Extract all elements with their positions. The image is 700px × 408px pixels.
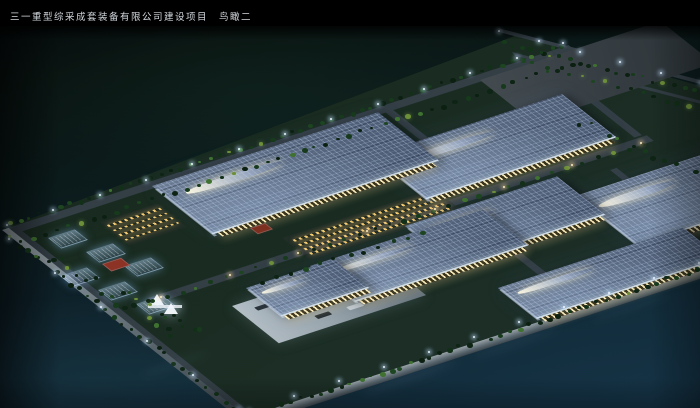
tree (94, 299, 99, 303)
tree (349, 253, 354, 257)
tree (65, 266, 70, 270)
tree (92, 217, 97, 221)
tree (31, 237, 36, 241)
street-light (99, 194, 101, 196)
street-light (608, 292, 610, 294)
tree (447, 348, 453, 353)
tree (538, 321, 543, 325)
tree (570, 63, 575, 67)
tree (172, 314, 176, 317)
tree (55, 229, 58, 232)
tree (154, 323, 160, 327)
street-light (516, 57, 518, 59)
tree (466, 96, 472, 101)
tree (147, 316, 153, 321)
night-aerial-rendering: 三一重型综采成套装备有限公司建设项目 鸟瞰二 (0, 0, 700, 408)
tree (242, 167, 247, 171)
tree (87, 197, 91, 200)
street-light (383, 366, 385, 368)
tree (369, 375, 372, 377)
tree (150, 197, 154, 200)
street-light (8, 238, 10, 240)
tree (178, 319, 182, 322)
tree (518, 328, 524, 332)
street-light (192, 374, 194, 376)
street-light (660, 72, 662, 74)
tree (163, 316, 167, 319)
tree (406, 237, 410, 240)
tree (290, 130, 294, 133)
street-light (293, 395, 295, 397)
entrance-gate-canopy (148, 305, 182, 308)
tree (501, 84, 507, 89)
tree (440, 81, 443, 84)
tree (204, 386, 207, 389)
factory-hall-D-skylight-monitor (595, 179, 679, 210)
tree (37, 212, 40, 214)
tree (259, 142, 264, 146)
tree (67, 201, 72, 205)
tree (527, 47, 533, 52)
tree (629, 87, 632, 90)
tree (529, 55, 533, 59)
tree (615, 137, 619, 140)
factory-hall-A1-skylight-monitor (182, 159, 285, 196)
street-light (562, 42, 564, 44)
tree (430, 108, 434, 111)
street-light (146, 340, 148, 342)
tree (650, 156, 656, 161)
street-light (640, 142, 642, 144)
tree (303, 267, 309, 272)
tree (627, 292, 630, 295)
tree (662, 159, 668, 163)
tree (260, 281, 265, 285)
tree (77, 286, 82, 290)
factory-hall-B2-end-wall (499, 289, 540, 320)
tree (390, 369, 396, 374)
tree (607, 134, 612, 138)
tree (47, 260, 51, 263)
tree (634, 289, 639, 293)
tree (351, 112, 357, 117)
tree (232, 172, 236, 175)
tree (580, 162, 584, 165)
tree (166, 327, 171, 331)
tree (137, 335, 142, 339)
tree (683, 86, 687, 90)
tree (555, 69, 560, 73)
street-light (284, 133, 286, 135)
tree (567, 73, 571, 76)
tree (654, 282, 659, 286)
tree (288, 401, 292, 404)
tree (520, 181, 525, 185)
tree (475, 94, 479, 97)
tree (134, 298, 138, 301)
tree (99, 292, 104, 296)
street-light (579, 51, 581, 53)
tree (651, 81, 654, 83)
tree (270, 138, 276, 143)
tree (160, 173, 164, 177)
tree (124, 205, 129, 209)
tree (239, 271, 243, 274)
tree (19, 240, 22, 243)
tree (181, 291, 186, 295)
tree (358, 129, 361, 132)
tree (384, 122, 388, 125)
tree (361, 251, 366, 255)
tree (17, 245, 23, 250)
street-light (338, 380, 340, 382)
street-light (498, 30, 500, 32)
campus-scene (0, 0, 700, 408)
perimeter-road-southwest (10, 229, 246, 408)
tree (360, 108, 365, 112)
tree (596, 155, 601, 159)
page-title: 三一重型综采成套装备有限公司建设项目 鸟瞰二 (10, 9, 252, 23)
tree (631, 73, 634, 76)
tree (651, 95, 656, 99)
tree (665, 100, 671, 105)
tree (397, 367, 402, 371)
tree (692, 88, 697, 92)
tree (290, 153, 296, 157)
tree (441, 105, 447, 110)
tree (487, 89, 493, 94)
tree (456, 344, 459, 347)
tree (547, 318, 552, 322)
tree (525, 77, 528, 79)
tree (209, 157, 213, 160)
tree (686, 104, 692, 109)
street-light (653, 277, 655, 279)
tree (310, 395, 314, 398)
tree (380, 372, 386, 377)
tree (550, 171, 554, 174)
tree (110, 295, 114, 298)
tree (148, 176, 154, 180)
tree (428, 85, 431, 88)
tree (641, 75, 644, 78)
tree (462, 198, 467, 202)
tree (43, 233, 48, 237)
tree (62, 275, 65, 278)
tree (577, 123, 581, 126)
tree (488, 65, 492, 68)
tree (632, 145, 637, 149)
open-ground-northeast (480, 21, 700, 122)
tree (214, 392, 219, 396)
street-light (366, 230, 368, 232)
street-light (160, 296, 162, 298)
tree (476, 338, 479, 341)
tree (557, 54, 561, 57)
tree (551, 46, 556, 50)
tree (302, 148, 308, 153)
tree (339, 115, 344, 119)
tree (289, 272, 294, 276)
tree (510, 80, 515, 84)
street-light (100, 306, 102, 308)
tree (60, 257, 64, 260)
tree (280, 135, 284, 138)
street-light (428, 351, 430, 353)
tree (530, 61, 533, 64)
tree (208, 280, 212, 283)
dormitory-window-lights (51, 231, 84, 247)
tree (452, 100, 457, 104)
tree (693, 170, 699, 175)
tree (220, 176, 223, 179)
tree (66, 224, 70, 227)
tree (279, 402, 284, 406)
tree (346, 134, 352, 138)
tree (603, 79, 607, 82)
parking-row-holder (100, 203, 187, 245)
street-light (6, 224, 8, 226)
parked-truck (314, 311, 332, 319)
tree (627, 148, 632, 152)
street-light (473, 336, 475, 338)
parking-row-lights (125, 222, 179, 241)
tree (695, 267, 700, 271)
tree (642, 91, 645, 94)
tree (148, 303, 152, 306)
tree (643, 149, 648, 153)
tree (416, 214, 421, 218)
tree (418, 112, 423, 116)
tree (197, 327, 203, 332)
tree (103, 308, 107, 311)
tree (534, 72, 537, 75)
tree (674, 276, 679, 280)
tree (489, 338, 493, 341)
tree (672, 83, 677, 87)
tree (510, 59, 515, 63)
tree (450, 78, 456, 83)
tree (79, 221, 85, 226)
tree (198, 161, 201, 164)
street-light (54, 272, 56, 274)
street-light (518, 321, 520, 323)
tree (674, 101, 680, 106)
tree (568, 57, 573, 61)
tree (616, 295, 621, 299)
tree (138, 179, 142, 182)
tree (395, 117, 399, 120)
street-light (145, 179, 147, 181)
tree (266, 161, 269, 164)
tree (206, 179, 212, 184)
tree (470, 73, 473, 76)
tree (560, 66, 564, 69)
tree (605, 68, 610, 72)
tree (467, 343, 473, 347)
tree (318, 261, 322, 264)
tree (137, 201, 141, 204)
tree (120, 323, 123, 326)
tree (274, 275, 279, 279)
tree (122, 306, 127, 310)
tree (419, 358, 425, 363)
tree (328, 388, 334, 393)
tree (102, 215, 107, 219)
tree (546, 70, 549, 73)
tree (157, 346, 162, 350)
tree (181, 325, 184, 327)
street-light (423, 88, 425, 90)
tree (75, 274, 78, 277)
tree (401, 219, 406, 223)
dormitory-window-lights (127, 259, 160, 275)
street-light (229, 274, 231, 276)
tree (130, 328, 133, 330)
tree (308, 124, 313, 128)
tree (502, 40, 507, 44)
tree (121, 291, 126, 295)
tree (420, 231, 426, 236)
tree (540, 51, 544, 54)
tree (535, 176, 540, 180)
tree (180, 367, 185, 371)
tree (427, 356, 431, 359)
tree (218, 153, 222, 156)
tree (476, 194, 482, 199)
tree (119, 186, 124, 190)
tree (520, 46, 526, 50)
street-light (503, 186, 505, 188)
tree (380, 101, 386, 106)
tree (27, 217, 31, 220)
tree (645, 285, 651, 289)
tree (500, 64, 506, 68)
tree (508, 330, 512, 333)
tree (129, 182, 132, 185)
tree (568, 310, 572, 313)
tree (564, 166, 569, 170)
tree (254, 266, 257, 268)
tree (340, 385, 344, 388)
tree (594, 300, 597, 303)
tree (94, 276, 98, 279)
tree (168, 334, 173, 338)
tree (131, 303, 137, 308)
tree (405, 114, 411, 119)
factory-hall-B0-skylight-monitor (260, 277, 308, 295)
tree (250, 146, 254, 149)
tree (25, 248, 31, 253)
title-bar: 三一重型综采成套装备有限公司建设项目 鸟瞰二 (0, 0, 700, 26)
tree (511, 45, 515, 48)
tree (555, 314, 561, 319)
tree (109, 189, 113, 192)
tree (578, 62, 583, 66)
tree (611, 151, 617, 156)
tree (113, 303, 119, 308)
tree (169, 169, 173, 172)
dormitory-block (124, 257, 164, 276)
street-light (377, 103, 379, 105)
tree (8, 221, 13, 225)
tree (112, 315, 118, 320)
tree (227, 151, 230, 154)
factory-hall-B2-skylight-monitor (515, 267, 594, 295)
tree (114, 211, 119, 215)
tree (660, 81, 665, 85)
dormitory-block (48, 229, 88, 248)
tree (389, 98, 394, 102)
tree (79, 200, 84, 204)
tree (392, 239, 396, 242)
street-light (238, 148, 240, 150)
tree (625, 73, 630, 77)
tree (172, 191, 178, 196)
